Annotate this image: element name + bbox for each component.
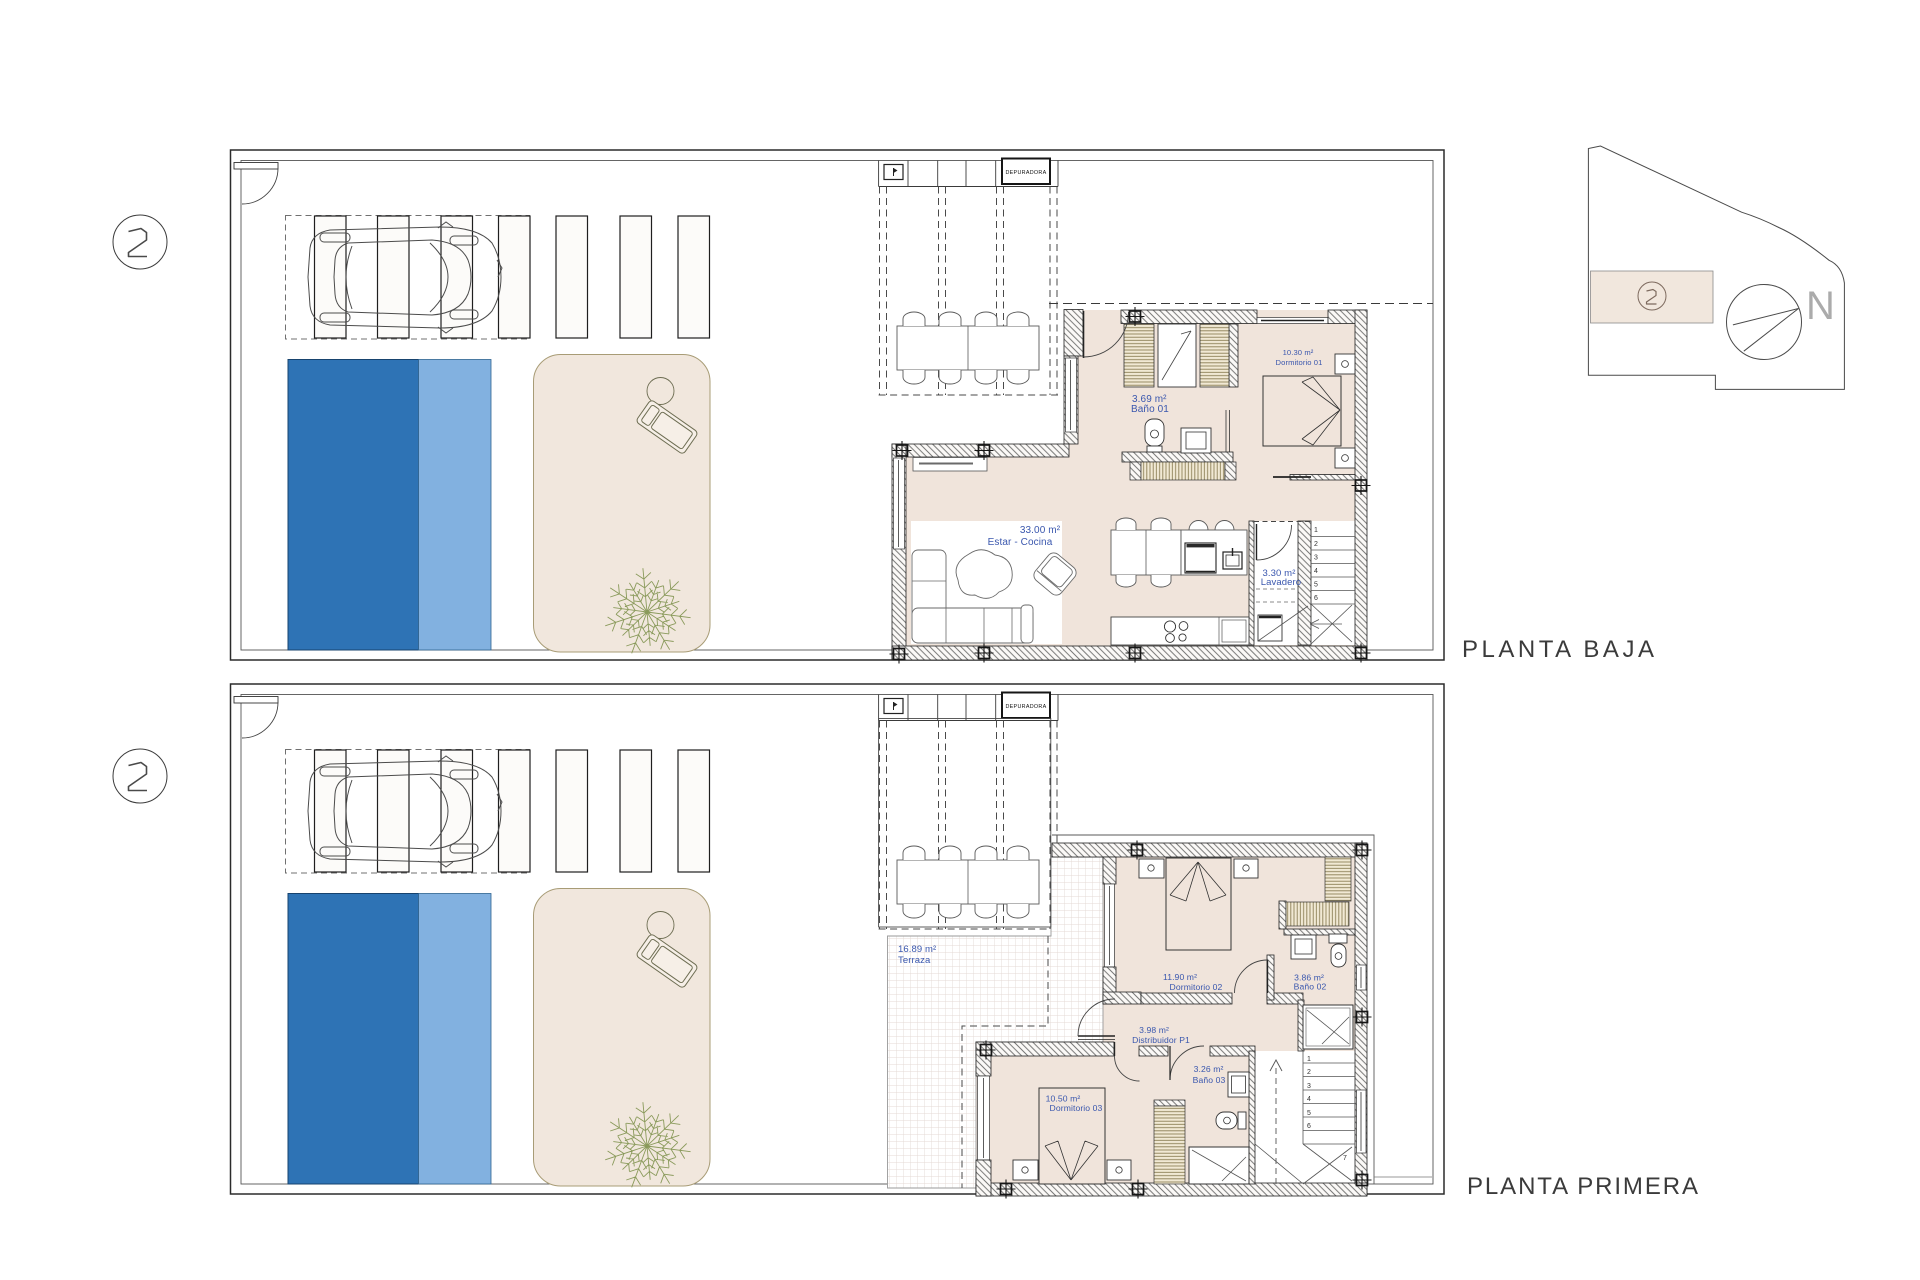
svg-text:Dormitorio 02: Dormitorio 02: [1170, 982, 1223, 992]
svg-text:1: 1: [1314, 527, 1318, 534]
svg-text:Baño 01: Baño 01: [1131, 404, 1169, 415]
svg-text:2: 2: [1314, 541, 1318, 548]
svg-text:7: 7: [1343, 1155, 1347, 1162]
svg-text:Terraza: Terraza: [898, 955, 931, 966]
svg-text:16.89 m²: 16.89 m²: [898, 944, 936, 955]
svg-text:Distribuidor P1: Distribuidor P1: [1132, 1035, 1190, 1045]
svg-text:3: 3: [1314, 555, 1318, 562]
svg-text:3.26 m²: 3.26 m²: [1194, 1064, 1224, 1074]
svg-text:10.50 m²: 10.50 m²: [1046, 1094, 1081, 1104]
svg-text:10.30 m²: 10.30 m²: [1283, 348, 1314, 357]
svg-text:3: 3: [1307, 1083, 1311, 1090]
svg-text:Estar - Cocina: Estar - Cocina: [988, 537, 1053, 548]
svg-text:5: 5: [1307, 1110, 1311, 1117]
svg-text:PLANTA PRIMERA: PLANTA PRIMERA: [1467, 1173, 1700, 1200]
svg-text:33.00 m²: 33.00 m²: [1020, 525, 1061, 536]
svg-text:Dormitorio 03: Dormitorio 03: [1050, 1103, 1103, 1113]
svg-text:Baño 02: Baño 02: [1294, 982, 1327, 992]
svg-text:11.90 m²: 11.90 m²: [1163, 972, 1197, 982]
svg-text:2: 2: [1307, 1069, 1311, 1076]
svg-text:N: N: [1806, 284, 1835, 328]
svg-text:Lavadero: Lavadero: [1261, 577, 1301, 588]
svg-text:6: 6: [1314, 595, 1318, 602]
svg-text:Dormitorio 01: Dormitorio 01: [1276, 358, 1323, 367]
svg-text:4: 4: [1307, 1096, 1311, 1103]
svg-text:3.98 m²: 3.98 m²: [1139, 1025, 1169, 1035]
svg-text:5: 5: [1314, 582, 1318, 589]
svg-text:Baño 03: Baño 03: [1193, 1075, 1226, 1085]
svg-text:6: 6: [1307, 1123, 1311, 1130]
svg-text:4: 4: [1314, 568, 1318, 575]
svg-text:1: 1: [1307, 1056, 1311, 1063]
svg-text:PLANTA BAJA: PLANTA BAJA: [1462, 636, 1657, 663]
